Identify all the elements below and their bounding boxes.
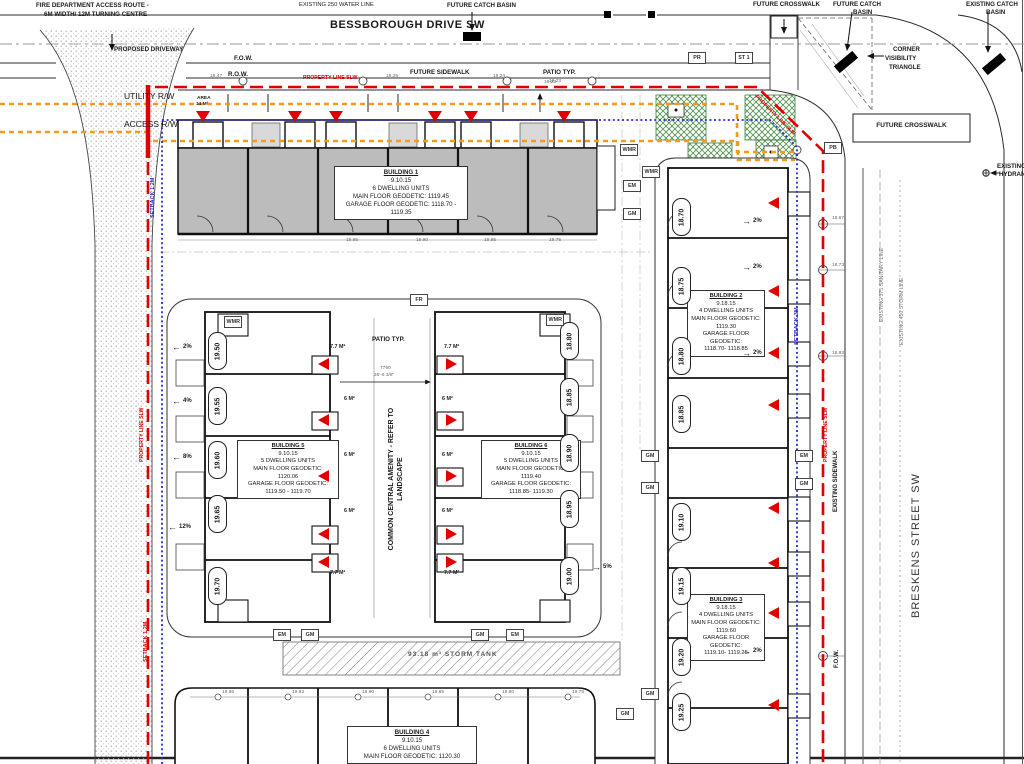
slope-arrow: 2% xyxy=(742,648,762,654)
patio-area-label: 6 M² xyxy=(442,396,453,402)
building-2-lot: 9.18.15 xyxy=(689,301,763,309)
common-amenity-label: COMMON CENTRAL AMENITY - REFER TO LANDSC… xyxy=(387,404,405,554)
patio-area-label: 7.7 M² xyxy=(330,570,345,576)
utility-box: FR xyxy=(410,294,428,306)
spot-elevation: 19.65 xyxy=(208,495,227,533)
unit-entry-marker-icon xyxy=(318,470,329,482)
building-1-units: 6 DWELLING UNITS xyxy=(336,185,466,193)
building-4-main-floor: MAIN FLOOR GEODETIC: 1120.30 xyxy=(349,753,475,761)
utility-box: GM xyxy=(641,688,659,700)
utility-box: WMR xyxy=(620,144,638,156)
building-3-units: 4 DWELLING UNITS xyxy=(689,612,763,620)
patio-area-label: 6 M² xyxy=(344,508,355,514)
street-label-breskens: BRESKENS STREET SW xyxy=(910,473,922,618)
spot-grade-value: 19.25 xyxy=(386,74,398,79)
dimension-mm: 7790 xyxy=(380,366,391,371)
spot-grade-value: 18.67 xyxy=(832,216,844,221)
utility-box: WMR xyxy=(642,166,660,178)
spot-elevation: 19.60 xyxy=(208,441,227,479)
spot-grade-value: 18.73 xyxy=(832,263,844,268)
corner-visibility-label-2: VISIBILITY xyxy=(885,55,916,62)
unit-entry-marker-icon xyxy=(446,358,457,370)
building-2-garage-floor: GARAGE FLOOR GEODETIC: xyxy=(689,331,763,346)
utility-box: EM xyxy=(506,629,524,641)
sanitary-line-label: EXISTING 375 SANITARY LINE xyxy=(879,248,885,322)
fire-access-label-1: FIRE DEPARTMENT ACCESS ROUTE - xyxy=(36,2,149,9)
spot-grade-value: 19.75 xyxy=(572,690,584,695)
spot-grade-value: 19.90 xyxy=(362,690,374,695)
utility-box: ST 1 xyxy=(735,52,753,64)
area-label-2: 14 M² xyxy=(196,102,208,108)
slope-arrow-icon xyxy=(172,398,181,404)
patio-area-label: 6 M² xyxy=(442,452,453,458)
existing-hydrant-label-1: EXISTING xyxy=(997,163,1024,170)
slope-arrow: 12% xyxy=(168,524,191,530)
spot-elevation: 18.85 xyxy=(560,378,579,416)
spot-grade-value: 19.80 xyxy=(502,690,514,695)
building-5-lot: 9.10.15 xyxy=(239,451,337,459)
spot-grade-value: 19.85 xyxy=(432,690,444,695)
future-sidewalk-label: FUTURE SIDEWALK xyxy=(410,69,469,76)
spot-elevation: 18.70 xyxy=(672,198,691,236)
building-3-name: BUILDING 3 xyxy=(689,597,763,605)
utility-box: PR xyxy=(688,52,706,64)
future-catch-basin-right-label-1: FUTURE CATCH xyxy=(833,1,881,8)
spot-grade-value: 18.83 xyxy=(832,351,844,356)
slope-arrow-icon xyxy=(168,524,177,530)
unit-entry-marker-icon xyxy=(446,556,457,568)
spot-elevation: 19.50 xyxy=(208,332,227,370)
fow-top-label: F.O.W. xyxy=(234,55,253,62)
utility-box: EM xyxy=(623,180,641,192)
building-6-main-floor-value: 1119.40 xyxy=(483,474,579,482)
utility-box: GM xyxy=(641,482,659,494)
spot-grade-value: 19.47 xyxy=(210,74,222,79)
spot-grade-value: 19.93 xyxy=(292,690,304,695)
site-plan-drawing xyxy=(0,0,1024,764)
unit-entry-marker-icon xyxy=(329,111,343,122)
slope-arrow-icon xyxy=(172,454,181,460)
future-catch-basin-right-label-2: BASIN xyxy=(853,9,872,16)
spot-grade-value: 19.85 xyxy=(484,238,496,243)
slope-arrow-icon xyxy=(742,264,751,270)
unit-entry-marker-icon xyxy=(768,399,779,411)
building-4-units: 6 DWELLING UNITS xyxy=(349,745,475,753)
existing-hydrant-label-2: HYDRANT xyxy=(999,171,1024,178)
setback-12-left-label: SETBACK 1.2M xyxy=(150,178,156,218)
patio-typ-center-label: PATIO TYP. xyxy=(372,336,405,343)
building-5-garage-floor: GARAGE FLOOR GEODETIC: xyxy=(239,481,337,489)
corner-visibility-label-1: CORNER xyxy=(893,46,920,53)
spot-elevation: 18.80 xyxy=(560,322,579,360)
spot-grade-value: 19.90 xyxy=(416,238,428,243)
slope-arrow: 2% xyxy=(742,218,762,224)
corner-visibility-label-3: TRIANGLE xyxy=(889,64,921,71)
access-rw-label: ACCESS R/W xyxy=(124,119,178,129)
slope-arrow: 4% xyxy=(172,398,192,404)
building-4-lot: 9.10.15 xyxy=(349,737,475,745)
building-5-name: BUILDING 5 xyxy=(239,443,337,451)
utility-box: GM xyxy=(795,478,813,490)
spot-grade-value: 19.75 xyxy=(549,238,561,243)
utility-box: GM xyxy=(616,708,634,720)
slope-arrow: 5% xyxy=(592,564,612,570)
patio-area-label: 6 M² xyxy=(344,452,355,458)
slope-arrow-icon xyxy=(742,350,751,356)
slope-arrow-icon xyxy=(592,564,601,570)
unit-entry-marker-icon xyxy=(446,470,457,482)
future-catch-basin-top-label: FUTURE CATCH BASIN xyxy=(447,2,516,9)
patio-area-label: 6 M² xyxy=(442,508,453,514)
patio-area-label: 7.7 M² xyxy=(330,344,345,350)
slope-arrow: 2% xyxy=(742,264,762,270)
building-1-garage-floor: GARAGE FLOOR GEODETIC: 1118.70 - 1119.35 xyxy=(336,201,466,217)
slope-arrow-icon xyxy=(172,344,181,350)
spot-elevation: 19.55 xyxy=(208,387,227,425)
slope-arrow-icon xyxy=(742,648,751,654)
building-6-garage-floor: GARAGE FLOOR GEODETIC: xyxy=(483,481,579,489)
utility-rw-label: UTILITY R/W xyxy=(124,91,174,101)
building-5-garage-floor-value: 1119.50 - 1119.70 xyxy=(239,489,337,497)
building-3-main-floor-value: 1119.60 xyxy=(689,628,763,636)
building-1-label: BUILDING 1 9.10.15 6 DWELLING UNITS MAIN… xyxy=(334,166,468,220)
site-plan-canvas: FIRE DEPARTMENT ACCESS ROUTE - 6M WIDTH/… xyxy=(0,0,1024,764)
unit-entry-marker-icon xyxy=(318,414,329,426)
unit-entry-marker-icon xyxy=(318,528,329,540)
water-line-label: EXISTING 250 WATER LINE xyxy=(299,2,374,9)
patio-area-label: 7.7 M² xyxy=(444,344,459,350)
proposed-driveway-label: PROPOSED DRIVEWAY xyxy=(114,46,183,53)
unit-entry-marker-icon xyxy=(768,285,779,297)
hydrant-icon xyxy=(983,170,1000,176)
row-top-label: R.O.W. xyxy=(228,71,248,78)
unit-entry-marker-icon xyxy=(196,111,210,122)
spot-grade-value: 19.95 xyxy=(346,238,358,243)
setback-12-left-lower-label: SETBACK 1.2M xyxy=(143,622,149,662)
storm-line-label: EXISTING 450 STORM LINE xyxy=(899,278,905,345)
spot-elevation: 19.20 xyxy=(672,638,691,676)
unit-entry-marker-icon xyxy=(464,111,478,122)
building-1-lot: 9.10.15 xyxy=(336,177,466,185)
property-line-right-label: PROPERTY LINE SLW xyxy=(823,408,829,462)
storm-tank-area xyxy=(283,642,620,675)
unit-entry-marker-icon xyxy=(768,347,779,359)
utility-box: GM xyxy=(301,629,319,641)
building-5-units: 5 DWELLING UNITS xyxy=(239,458,337,466)
slope-arrow: 2% xyxy=(172,344,192,350)
building-3-lot: 9.18.15 xyxy=(689,605,763,613)
patio-typ-top-label: PATIO TYP. xyxy=(543,69,576,76)
unit-entry-marker-icon xyxy=(288,111,302,122)
spot-elevation: 19.70 xyxy=(208,567,227,605)
spot-elevation: 18.95 xyxy=(560,490,579,528)
unit-entry-marker-icon xyxy=(557,111,571,122)
patio-area-label: 7.7 M² xyxy=(444,570,459,576)
spot-elevation: 18.75 xyxy=(672,267,691,305)
building-2-main-floor: MAIN FLOOR GEODETIC: xyxy=(689,316,763,324)
slope-arrow: 2% xyxy=(742,350,762,356)
building-1-name: BUILDING 1 xyxy=(336,169,466,177)
utility-box: EM xyxy=(273,629,291,641)
storm-tank-label: 93.18 m³ STORM TANK xyxy=(408,651,498,658)
future-crosswalk-top-label: FUTURE CROSSWALK xyxy=(753,1,820,8)
utility-box: WMR xyxy=(224,316,242,328)
spot-grade-value: 19.96 xyxy=(222,690,234,695)
spot-elevation: 19.25 xyxy=(672,693,691,731)
unit-entry-marker-icon xyxy=(428,111,442,122)
slope-arrow-icon xyxy=(742,218,751,224)
unit-entry-marker-icon xyxy=(446,528,457,540)
building-4-name: BUILDING 4 xyxy=(349,729,475,737)
property-line-left-label: PROPERTY LINE SLW xyxy=(139,408,145,462)
unit-entry-marker-icon xyxy=(768,197,779,209)
future-crosswalk-top xyxy=(770,15,798,90)
spot-grade-value: 19.24 xyxy=(493,74,505,79)
fire-access-label-2: 6M WIDTH/ 12M TURNING CENTRE xyxy=(44,11,147,18)
building-2-label: BUILDING 2 9.18.15 4 DWELLING UNITS MAIN… xyxy=(687,290,765,357)
slope-arrow: 8% xyxy=(172,454,192,460)
building-4-label: BUILDING 4 9.10.15 6 DWELLING UNITS MAIN… xyxy=(347,726,477,764)
dimension-ft: 26'-6 3/8" xyxy=(374,373,394,378)
spot-elevation: 18.80 xyxy=(672,337,691,375)
building-3-main-floor: MAIN FLOOR GEODETIC: xyxy=(689,620,763,628)
patio-area-label: 6 M² xyxy=(344,396,355,402)
unit-entry-marker-icon xyxy=(768,699,779,711)
utility-box: GM xyxy=(623,208,641,220)
existing-sidewalk-label: EXISTING SIDEWALK xyxy=(833,451,839,512)
unit-entry-marker-icon xyxy=(318,358,329,370)
unit-entry-marker-icon xyxy=(768,557,779,569)
utility-box: GM xyxy=(641,450,659,462)
utility-box: EM xyxy=(795,450,813,462)
property-line-label-top: PROPERTY LINE SLW xyxy=(303,75,357,81)
setback-3m-label: SETBACK 3M xyxy=(794,307,800,345)
spot-elevation: 19.10 xyxy=(672,503,691,541)
area-label-1: AREA xyxy=(197,96,211,102)
spot-elevation: 19.00 xyxy=(560,557,579,595)
building-2-main-floor-value: 1119.30 xyxy=(689,324,763,332)
fow-right-label: F.O.W. xyxy=(834,650,840,668)
utility-box: GM xyxy=(471,629,489,641)
existing-catch-basin-label-2: BASIN xyxy=(986,9,1005,16)
spot-elevation: 18.90 xyxy=(560,434,579,472)
future-crosswalk-right-label: FUTURE CROSSWALK xyxy=(854,122,969,129)
unit-entry-marker-icon xyxy=(318,556,329,568)
spot-elevation: 18.85 xyxy=(672,395,691,433)
utility-box: PB xyxy=(824,142,842,154)
existing-catch-basin-label-1: EXISTING CATCH xyxy=(966,1,1018,8)
building-2-name: BUILDING 2 xyxy=(689,293,763,301)
street-label-bessborough: BESSBOROUGH DRIVE SW xyxy=(330,19,485,32)
building-1-main-floor: MAIN FLOOR GEODETIC: 1119.45 xyxy=(336,193,466,201)
unit-entry-marker-icon xyxy=(768,607,779,619)
spot-elevation: 19.15 xyxy=(672,567,691,605)
common-amenity-line-1: COMMON CENTRAL AMENITY - xyxy=(388,445,395,550)
unit-entry-marker-icon xyxy=(446,414,457,426)
spot-grade-value: 19.23 xyxy=(544,80,556,85)
building-2-units: 4 DWELLING UNITS xyxy=(689,308,763,316)
unit-entry-marker-icon xyxy=(768,502,779,514)
utility-box: WMR xyxy=(546,314,564,326)
